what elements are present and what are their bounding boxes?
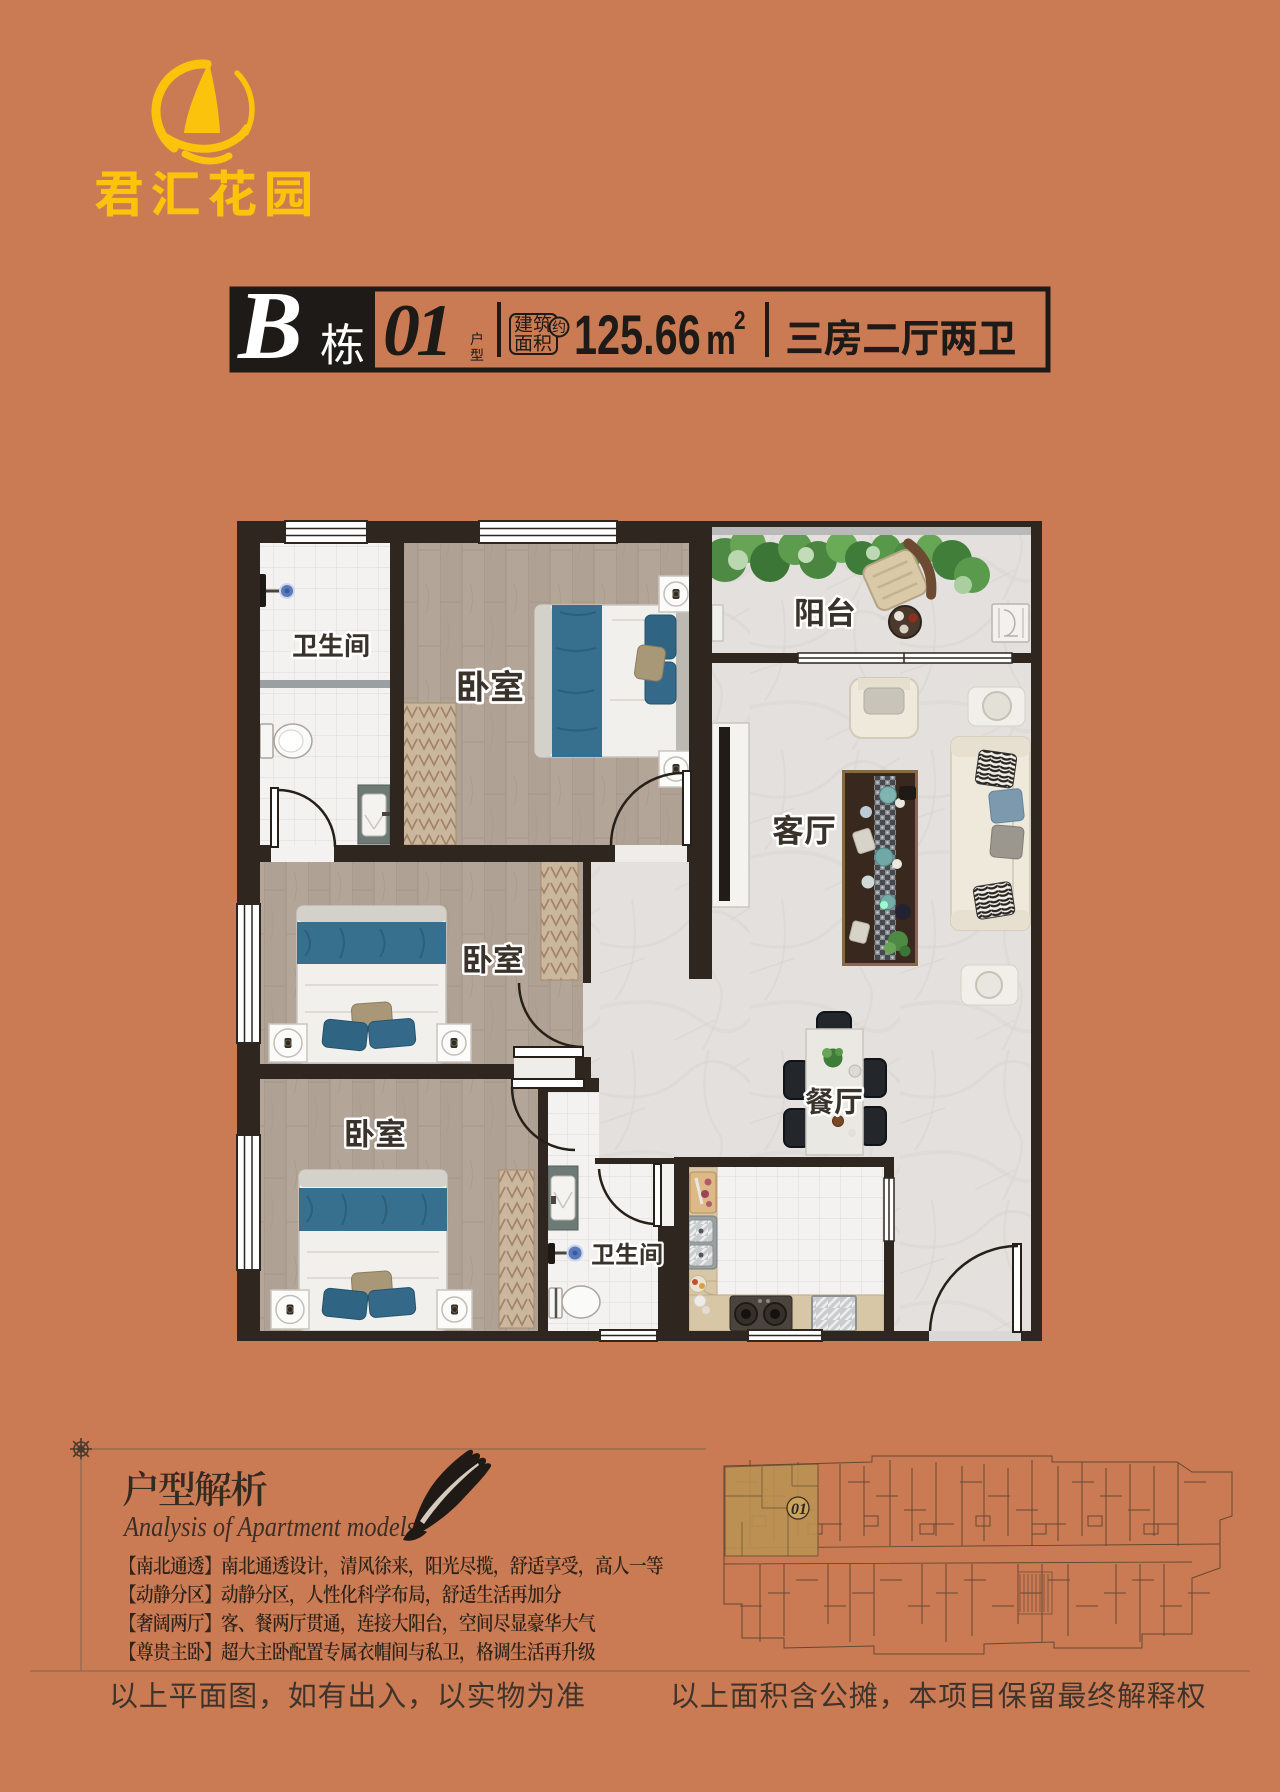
- svg-text:01: 01: [383, 290, 449, 372]
- svg-text:01: 01: [791, 1501, 807, 1518]
- svg-text:B: B: [237, 272, 303, 379]
- svg-text:m: m: [706, 318, 736, 364]
- svg-text:2: 2: [734, 306, 746, 335]
- svg-text:Analysis of Apartment models: Analysis of Apartment models: [122, 1511, 416, 1543]
- svg-text:125.66: 125.66: [574, 304, 701, 367]
